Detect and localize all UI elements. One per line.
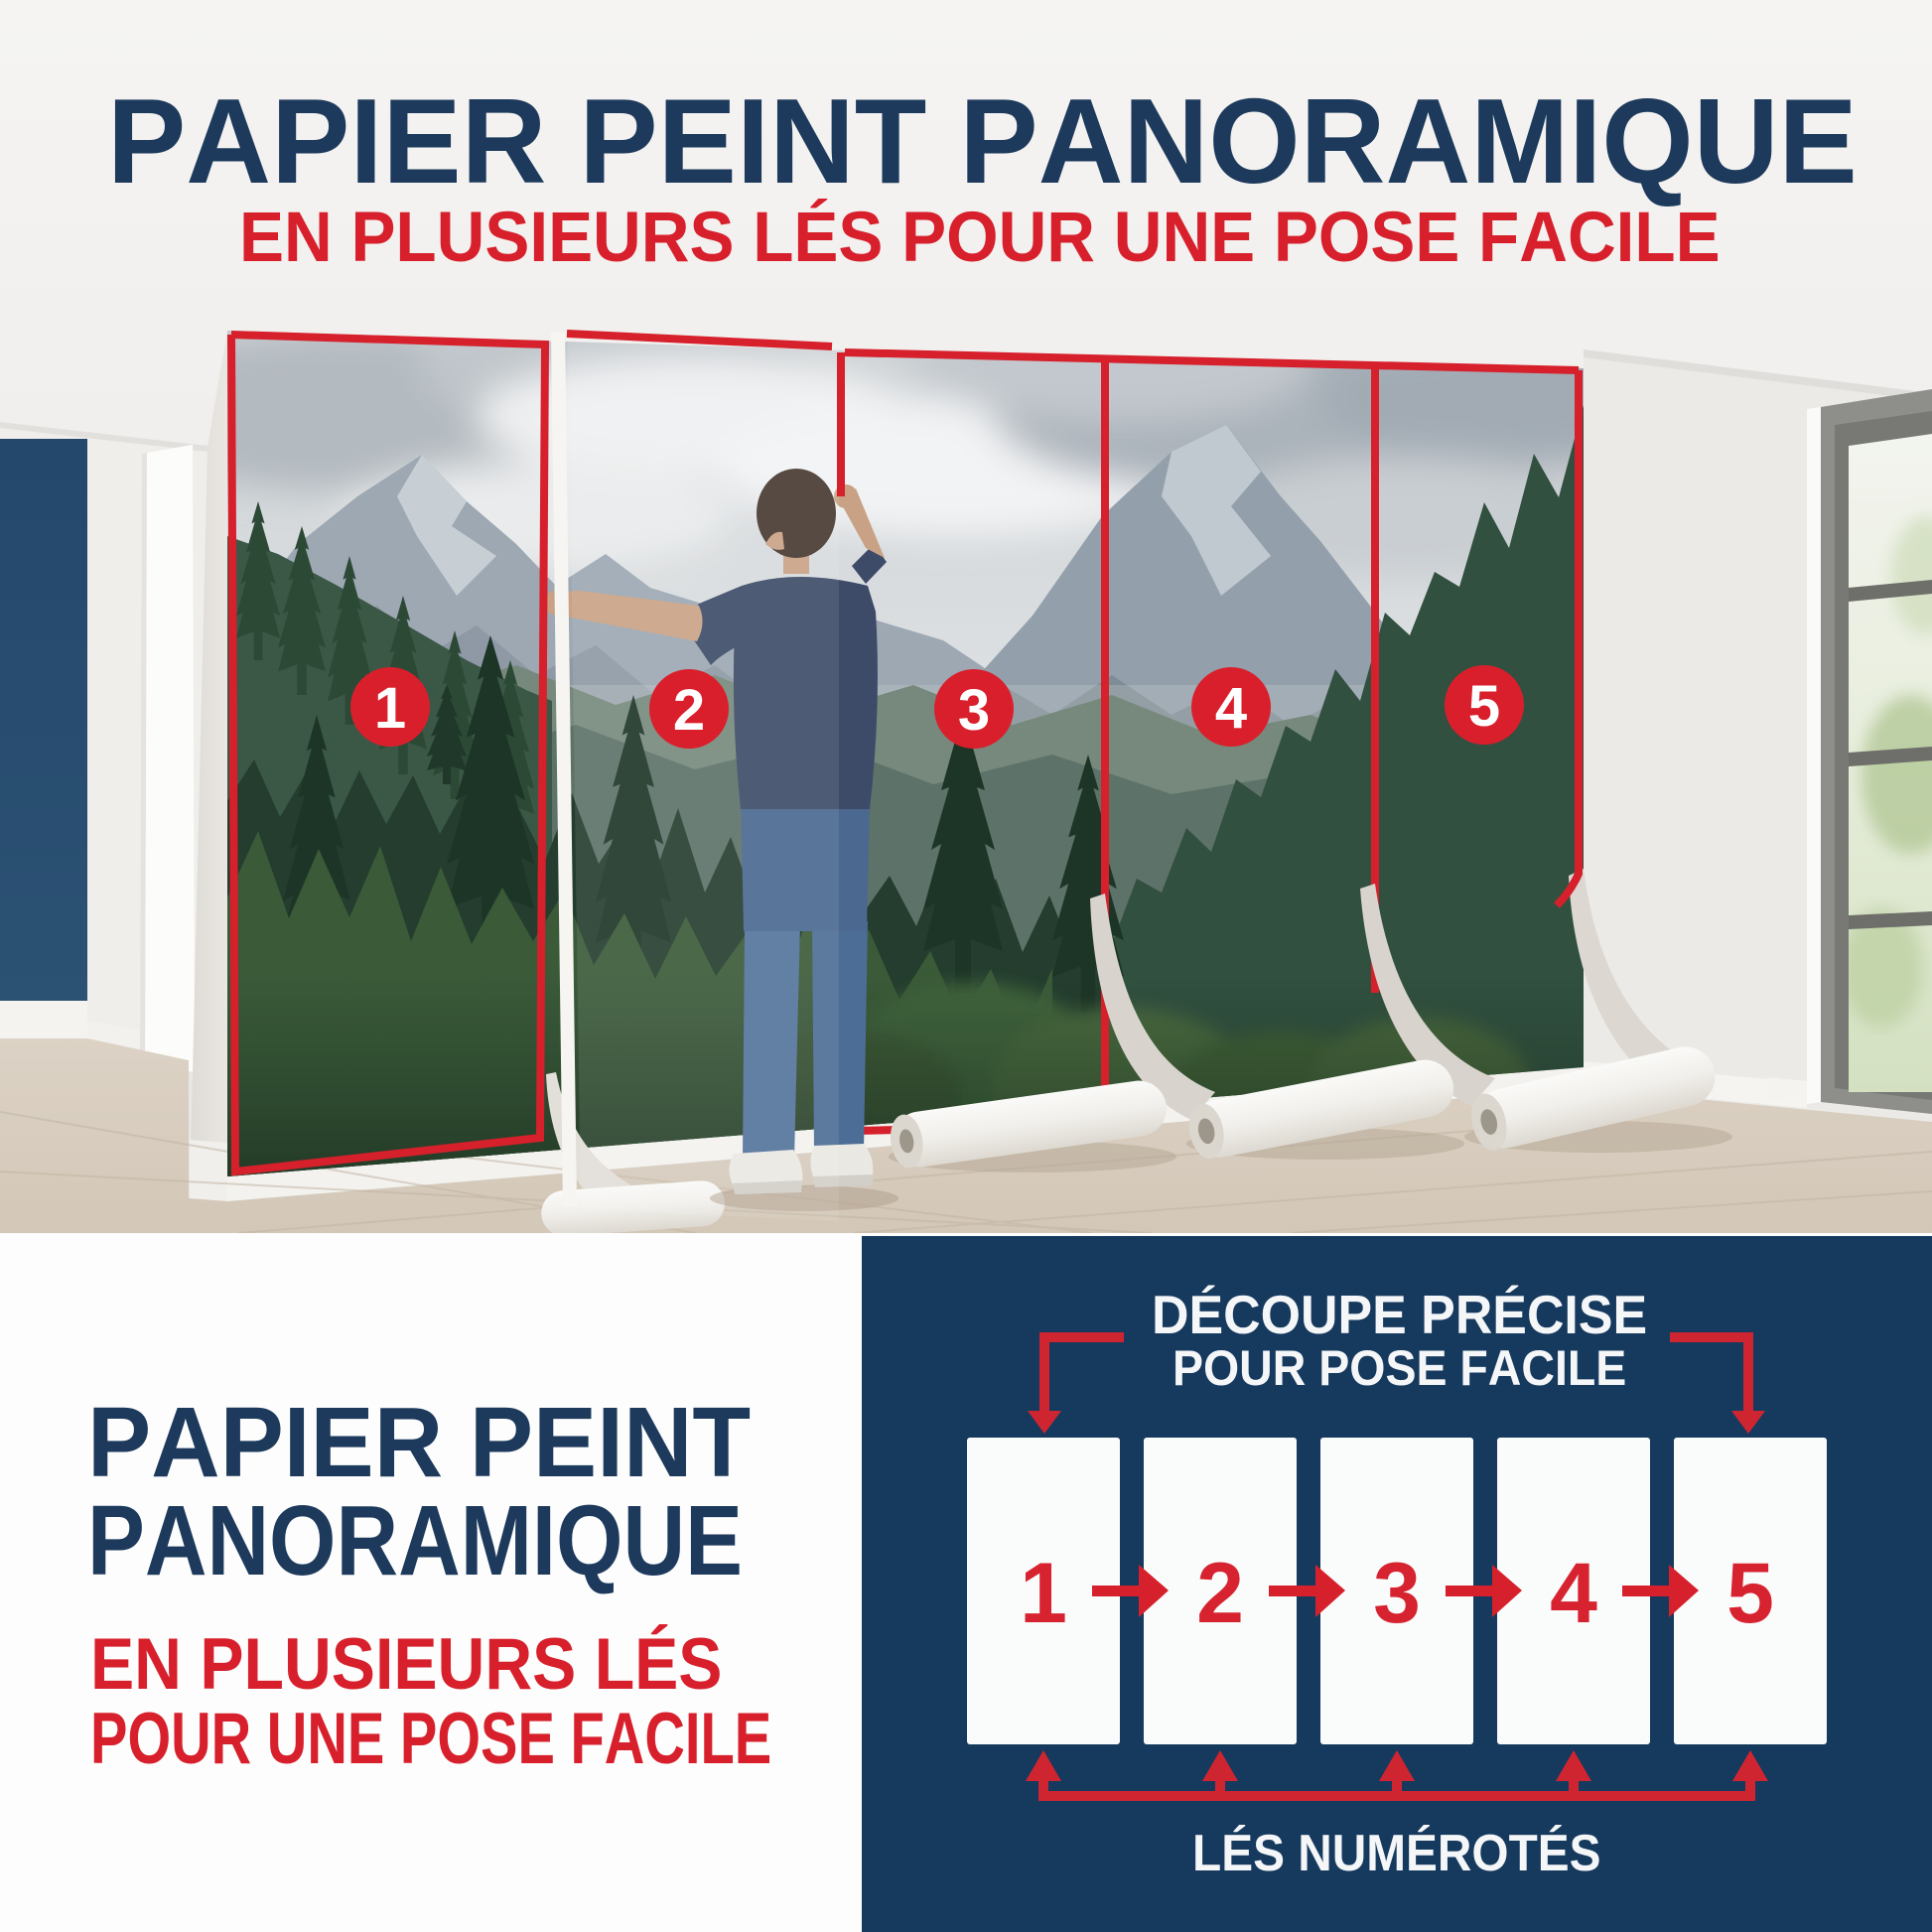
svg-text:3: 3 [958,678,990,743]
svg-text:4: 4 [1215,676,1247,741]
svg-text:5: 5 [1468,674,1500,739]
svg-text:2: 2 [673,678,705,743]
svg-text:1: 1 [374,676,406,741]
